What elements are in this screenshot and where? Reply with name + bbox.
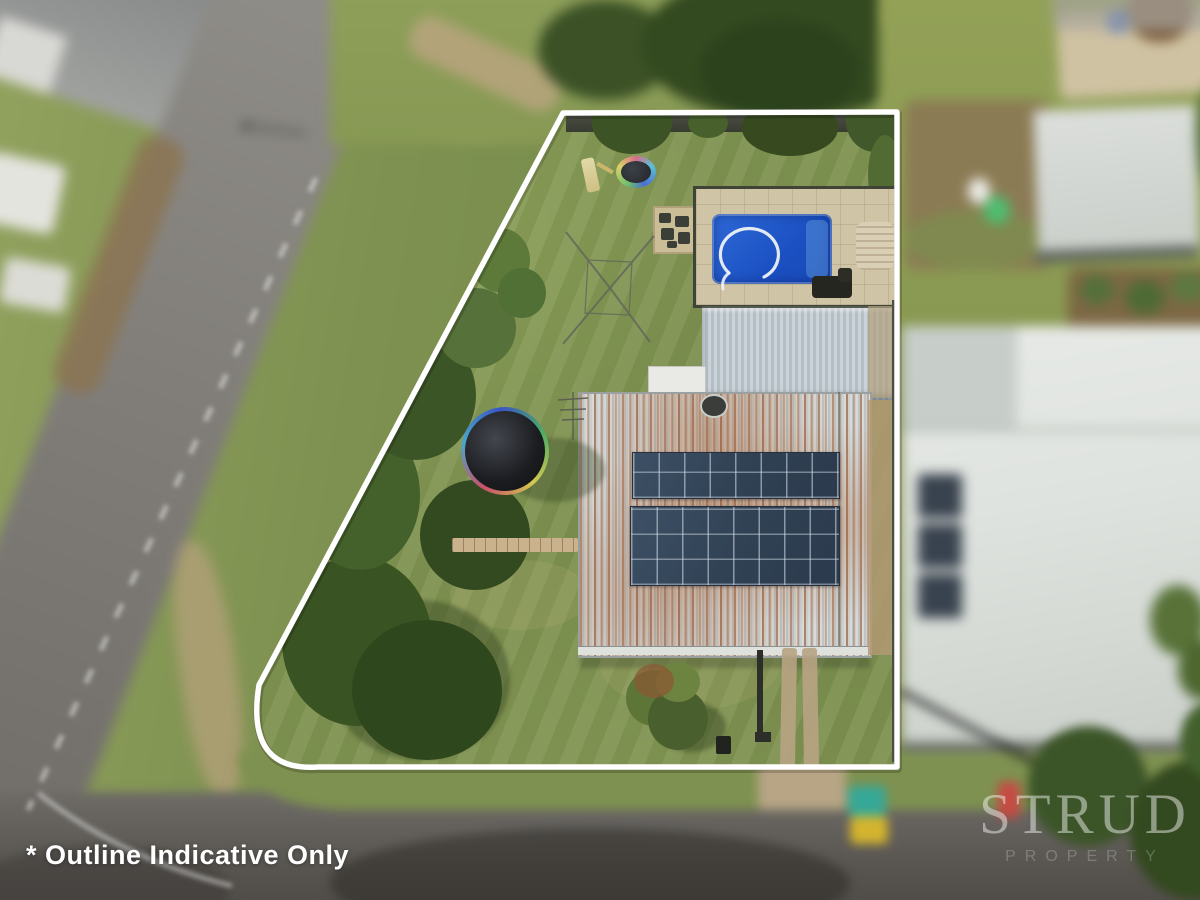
sun-lounger (856, 222, 894, 270)
aerial-photo: * Outline Indicative Only STRUD PROPERTY (0, 0, 1200, 900)
meter-box (716, 736, 731, 754)
side-path-bricks (868, 400, 894, 655)
stepping-stone (678, 232, 690, 244)
tree-canopy (352, 620, 502, 760)
downpipe (757, 650, 763, 738)
bush (498, 268, 546, 318)
stepping-stone (659, 213, 671, 223)
pool-step (806, 220, 828, 278)
side-fence (892, 300, 896, 762)
wheelie-bin-yellow (850, 816, 888, 844)
solar-array-upper (632, 452, 840, 499)
disclaimer-caption: * Outline Indicative Only (26, 840, 349, 871)
driveway-track (780, 648, 797, 768)
driveway-track (802, 648, 819, 768)
agency-watermark: STRUD PROPERTY (975, 786, 1195, 865)
chimney-vent (700, 394, 728, 418)
pool-pump (838, 268, 852, 282)
stepping-stone (675, 216, 689, 227)
watermark-tagline: PROPERTY (975, 849, 1195, 865)
garden-path (452, 538, 578, 552)
tree-canopy (420, 480, 530, 590)
stepping-stone (667, 241, 677, 248)
trampoline (461, 407, 549, 495)
gutter (578, 646, 868, 655)
kiddie-pool (616, 156, 656, 188)
front-shrub-dry-top (634, 664, 674, 698)
solar-array-lower (630, 506, 840, 586)
trampoline-cover (465, 411, 545, 491)
watermark-brand: STRUD (975, 786, 1195, 843)
stepping-stone (661, 228, 674, 240)
kiddie-pool-water (621, 161, 651, 183)
wheelie-bin-teal (848, 786, 886, 816)
downpipe-elbow (755, 732, 771, 742)
